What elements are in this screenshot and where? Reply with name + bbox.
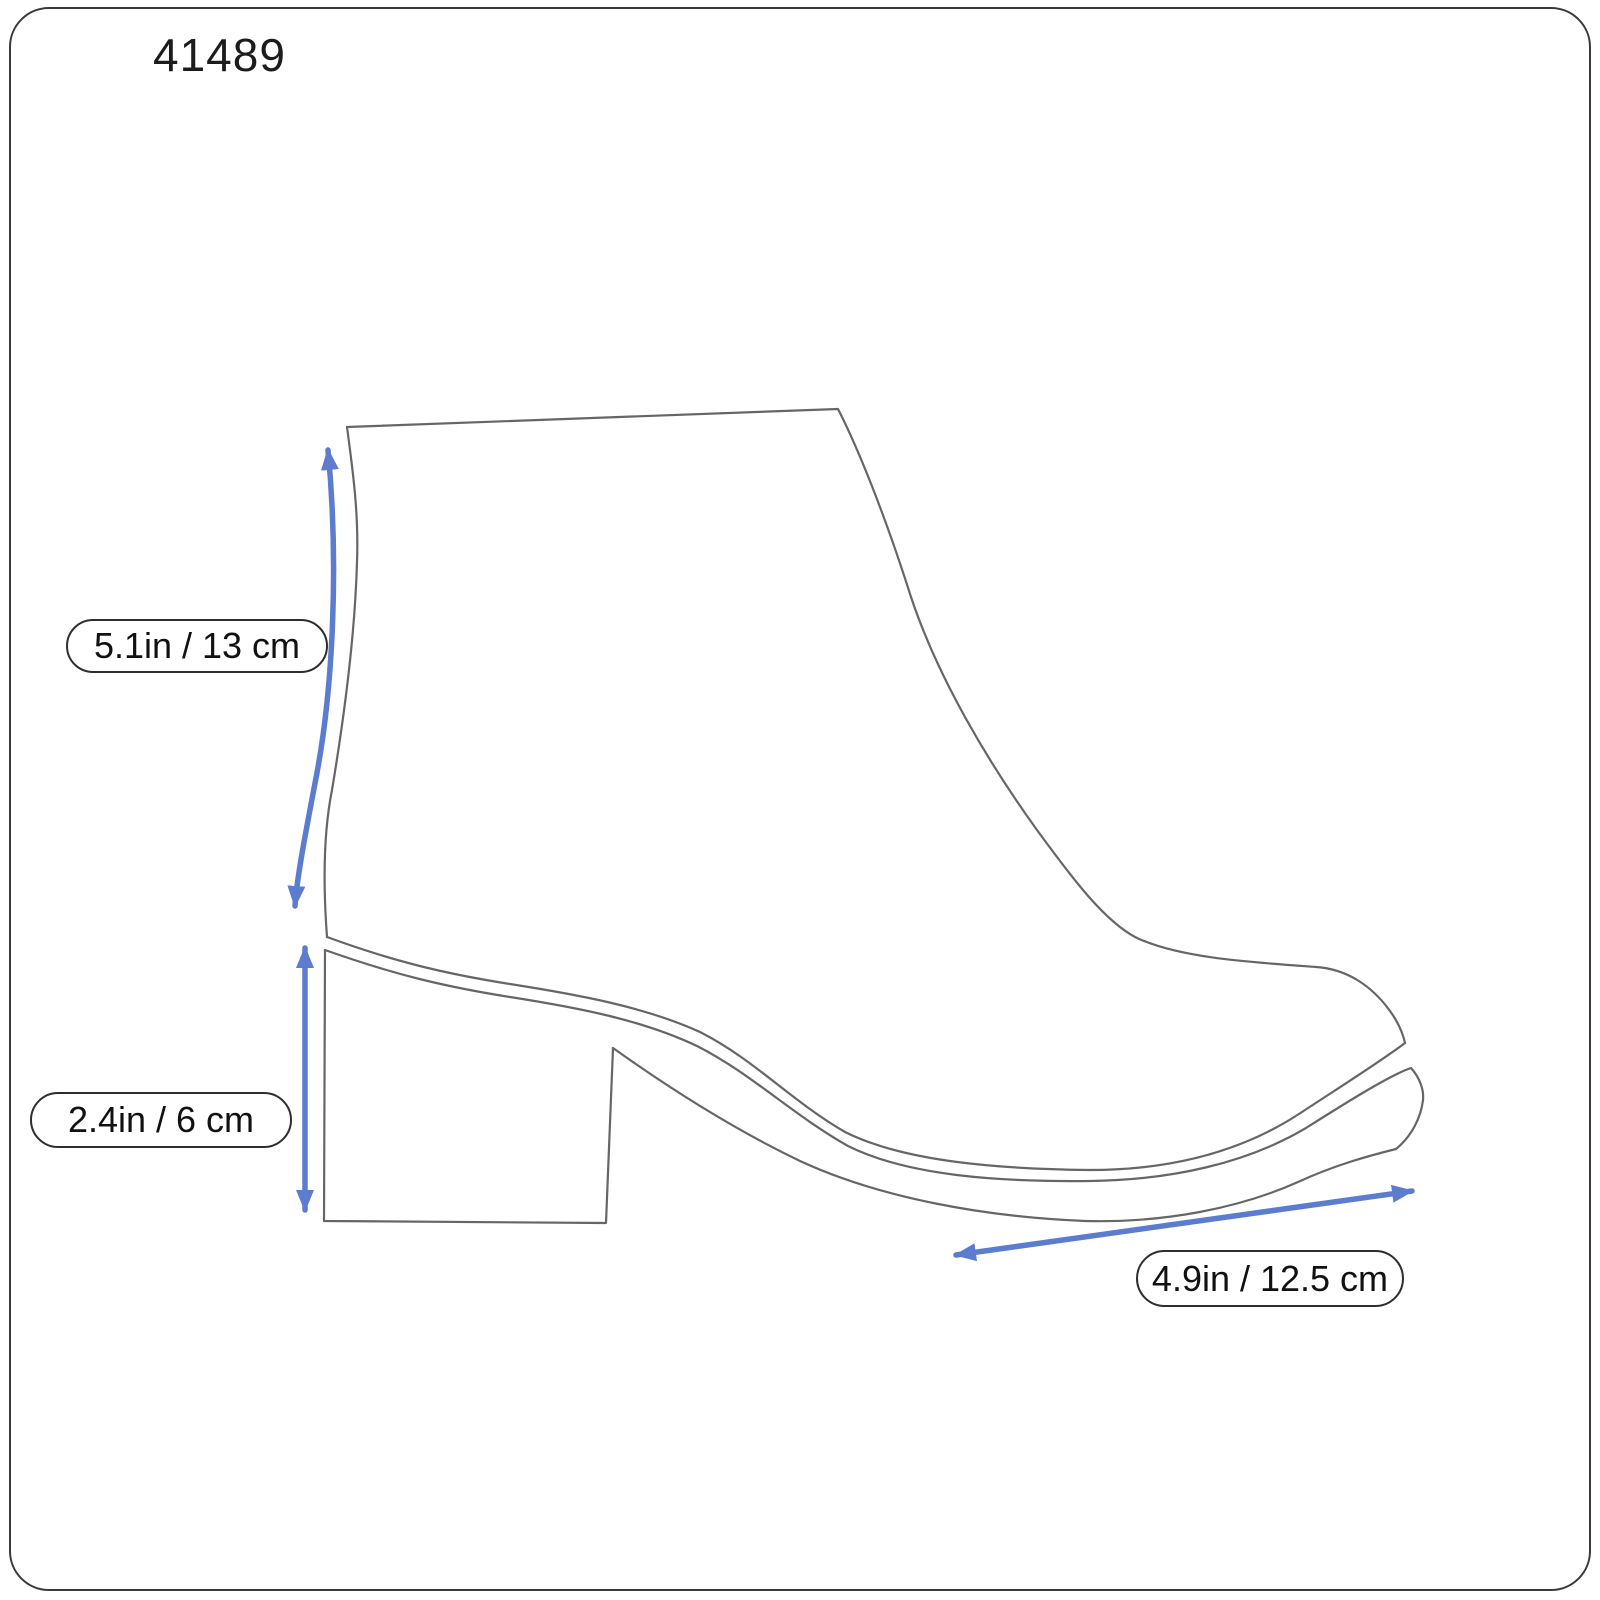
boot-line-drawing (0, 0, 1600, 1600)
sole-length-label: 4.9in / 12.5 cm (1136, 1250, 1404, 1307)
shaft-height-arrow-icon (295, 450, 334, 906)
shaft-height-value: 5.1in / 13 cm (94, 625, 300, 667)
heel-height-value: 2.4in / 6 cm (68, 1099, 254, 1141)
boot-upper-outline (325, 409, 1405, 1043)
sole-length-value: 4.9in / 12.5 cm (1152, 1258, 1388, 1300)
sole-length-arrow-icon (956, 1191, 1412, 1255)
boot-welt-lower-line (325, 950, 1423, 1181)
heel-height-label: 2.4in / 6 cm (30, 1092, 292, 1148)
shaft-height-label: 5.1in / 13 cm (66, 619, 328, 673)
boot-sole-bottom-line (613, 1048, 1396, 1221)
measurement-diagram: 41489 5.1in / 13 cm 2.4in / 6 cm (0, 0, 1600, 1600)
boot-welt-upper-line (327, 937, 1405, 1170)
boot-heel-outline (324, 950, 613, 1223)
